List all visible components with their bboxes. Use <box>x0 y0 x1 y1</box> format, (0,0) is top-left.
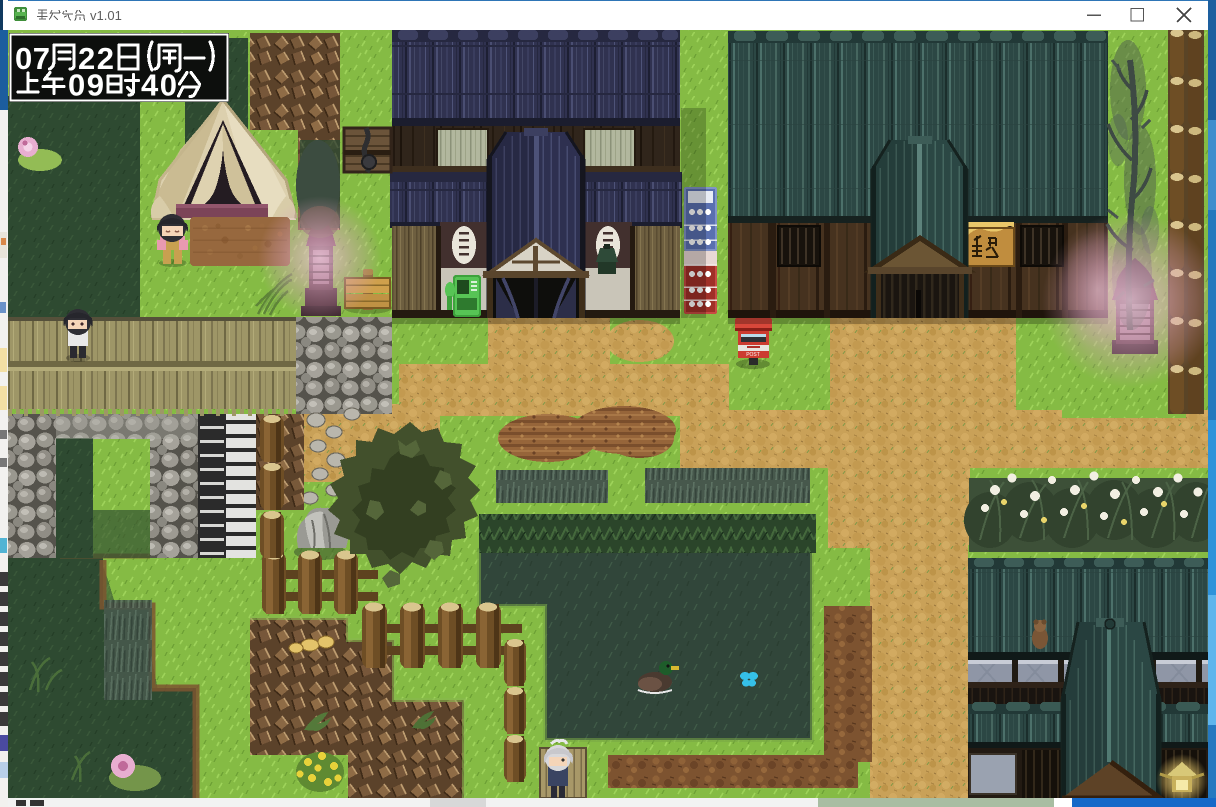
svg-text:07: 07 <box>15 41 50 76</box>
svg-text:v1.01: v1.01 <box>90 8 122 23</box>
svg-text:09: 09 <box>68 68 104 103</box>
svg-text:POST: POST <box>746 352 760 358</box>
svg-text:40: 40 <box>141 68 177 103</box>
